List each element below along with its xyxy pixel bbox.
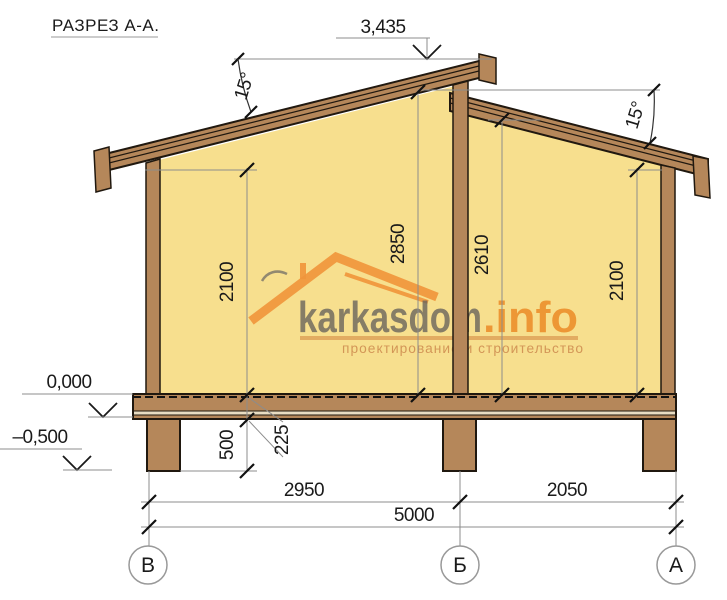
axis-label-center: Б [453,554,467,577]
left-wall-height: 2100 [217,262,238,302]
section-drawing: РАЗРЕЗ А-А. karkasdom .info проектирован… [0,0,727,600]
floor-board-strip [134,411,675,415]
basement-level-value: –0,500 [12,427,67,448]
watermark-tld: .info [483,293,578,342]
left-eave-fascia [94,147,111,192]
foundation-post-left [147,419,180,471]
foundation-post-right [643,419,676,471]
axis-label-left: В [141,554,155,577]
total-span: 5000 [394,505,434,526]
middle-post [453,81,468,394]
ridge-level-mark: 3,435 [234,17,492,59]
bay-right-span: 2050 [547,480,587,501]
watermark-underline [300,336,578,340]
level-arrow-icon [89,403,117,417]
right-wall-height: 2100 [607,261,628,301]
zero-level-value: 0,000 [46,372,91,393]
basement-level-mark: –0,500 [0,427,112,470]
left-slope-angle-value: 15° [231,70,259,102]
floor-thickness: 225 [272,425,293,455]
bay-left-span: 2950 [284,480,324,501]
ridge-level-value: 3,435 [360,17,405,38]
foundation-post-center [443,419,476,471]
floor-platform [133,394,676,419]
right-slope-angle-value: 15° [622,99,650,131]
zero-level-mark: 0,000 [22,372,133,417]
drawing-canvas: РАЗРЕЗ А-А. karkasdom .info проектирован… [0,0,727,600]
left-post [146,159,160,394]
drawing-title: РАЗРЕЗ А-А. [52,16,159,35]
axis-bubbles: В Б А [129,546,695,584]
axis-label-right: А [669,554,683,577]
left-slope-angle: 15° [231,53,259,118]
mid-left-height: 2850 [388,224,409,264]
right-eave-fascia [693,156,710,198]
horizontal-dimensions: 2950 2050 5000 [141,480,684,534]
right-post [661,165,675,394]
mid-right-height: 2610 [472,235,493,275]
level-arrow-icon [63,456,91,470]
foundation-height: 500 [217,430,238,460]
